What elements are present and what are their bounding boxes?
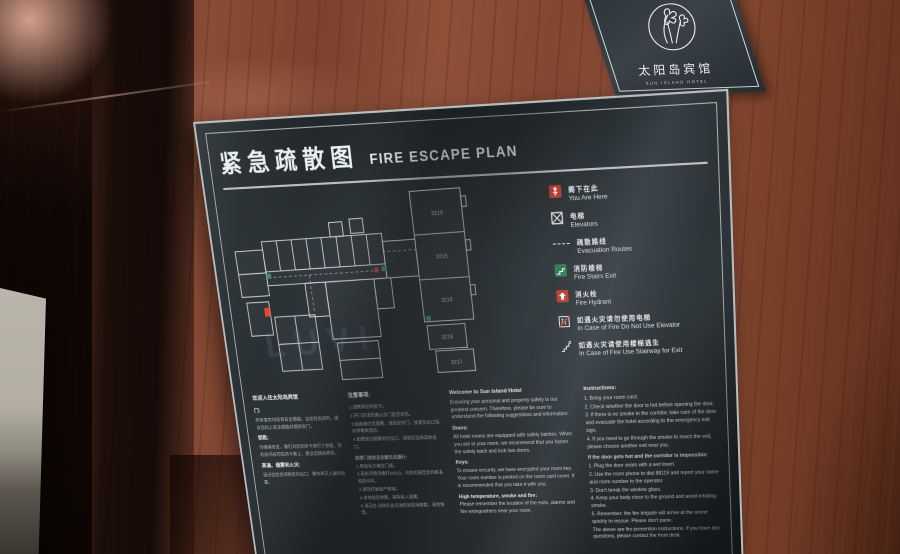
sign-title: 紧急疏散图 FIRE ESCAPE PLAN [217, 115, 707, 180]
room-number: 3213 [431, 210, 444, 217]
sign-title-cn: 紧急疏散图 [217, 136, 360, 180]
no-elevator-icon [558, 315, 571, 328]
legend-item-no-elevator: 如遇火灾请勿使用电梯 In Case of Fire Do Not Use El… [558, 308, 714, 332]
room-number: 3215 [436, 253, 448, 260]
stair-exit-marker [266, 273, 271, 278]
fine-print-en-instructions: Instructions: 1. Bring your room card. 2… [583, 381, 723, 554]
legend-item-fire-hydrant: 消火栓 Fire Hydrant [556, 282, 713, 307]
background-wall-sliver [0, 288, 46, 554]
sign-title-en: FIRE ESCAPE PLAN [369, 143, 519, 168]
stair-exit-marker [382, 265, 387, 270]
foreground-blur-highlight [0, 0, 200, 120]
hotel-flower-logo-icon [638, 0, 705, 59]
legend-item-fire-stairs: 消防楼梯 Fire Stairs Exit [554, 256, 712, 282]
fire-hydrant-icon [556, 289, 569, 302]
legend: 阁下在此 You Are Here 电梯 Elevators [532, 169, 715, 376]
fine-print: 欢迎入住太阳岛宾馆 门: 所有客房均装有安全锁链。当您在房间时，建议您扣上安全锁… [252, 381, 723, 554]
fire-escape-plan-sign: 紧急疏散图 FIRE ESCAPE PLAN [193, 89, 744, 554]
elevator-icon [551, 211, 564, 224]
you-are-here-icon [549, 184, 562, 197]
hotel-name-en: SUN ISLAND HOTEL [645, 79, 708, 86]
fire-stairs-icon [554, 263, 567, 276]
legend-item-you-are-here: 阁下在此 You Are Here [549, 175, 709, 203]
fine-print-cn-instructions: 注意事项: 1.请携带您的房卡。 2.开门前请先确认房门是否发热。 3.如走廊内… [347, 389, 454, 554]
fine-print-en-welcome: Welcome to Sun Island Hotel Ensuring you… [449, 385, 584, 554]
photo-of-fire-escape-sign: 太阳岛宾馆 SUN ISLAND HOTEL 紧急疏散图 FIRE ESCAPE… [0, 0, 900, 554]
legend-item-elevators: 电梯 Elevators [550, 203, 709, 230]
hotel-logo-sign: 太阳岛宾馆 SUN ISLAND HOTEL [580, 0, 766, 97]
room-number: 3218 [441, 334, 453, 341]
floor-plan-drawing: 32133215321632183217 [224, 178, 547, 385]
room-number: 3217 [451, 359, 463, 365]
stair-exit-marker [426, 315, 431, 320]
legend-item-stairway-exit: 如遇火灾请使用楼梯逃生 In Case of Fire Use Stairway… [560, 334, 715, 358]
hydrant-marker [374, 267, 378, 272]
hotel-name-cn: 太阳岛宾馆 [637, 59, 714, 79]
evacuation-route-icon [553, 242, 570, 246]
stairway-exit-icon [560, 340, 573, 352]
fine-print-cn-welcome: 欢迎入住太阳岛宾馆 门: 所有客房均装有安全锁链。当您在房间时，建议您扣上安全锁… [252, 392, 358, 554]
legend-item-evacuation-routes: 疏散路线 Evacuation Routes [552, 229, 710, 255]
floor-plan: 32133215321632183217 LUVI [224, 178, 547, 385]
room-number: 3216 [441, 297, 453, 304]
